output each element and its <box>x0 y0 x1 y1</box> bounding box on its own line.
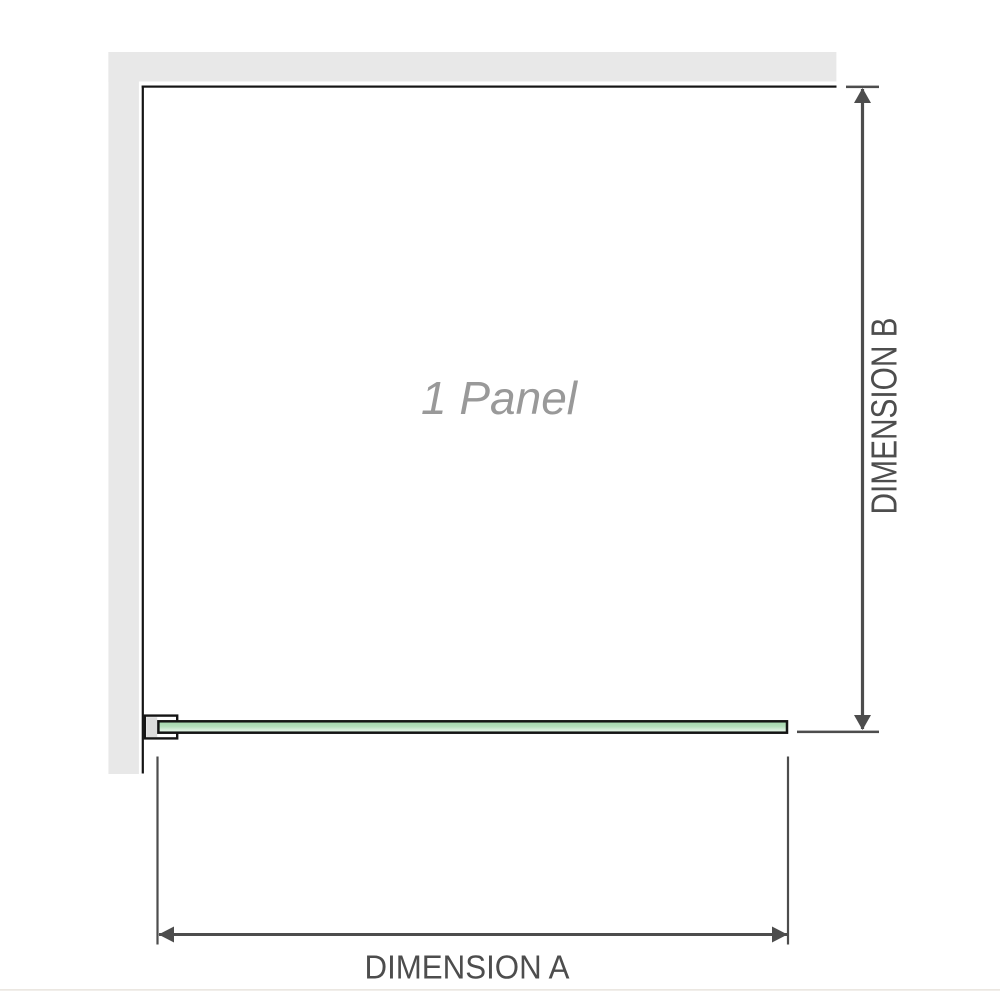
svg-text:DIMENSION B: DIMENSION B <box>864 318 905 515</box>
svg-text:1 Panel: 1 Panel <box>421 372 579 424</box>
svg-text:DIMENSION A: DIMENSION A <box>365 950 571 987</box>
